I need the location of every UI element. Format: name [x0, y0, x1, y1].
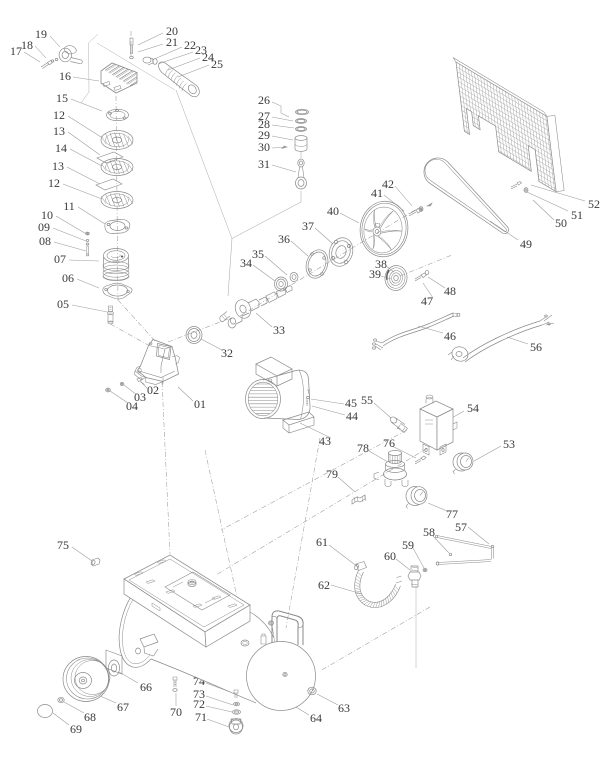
svg-text:45: 45 [345, 396, 357, 410]
svg-text:04: 04 [126, 399, 138, 413]
svg-text:56: 56 [530, 340, 542, 354]
svg-text:11: 11 [63, 199, 75, 213]
svg-text:25: 25 [211, 57, 223, 71]
svg-text:43: 43 [319, 434, 331, 448]
svg-text:18: 18 [21, 38, 33, 52]
svg-text:69: 69 [70, 722, 82, 736]
svg-text:34: 34 [240, 256, 252, 270]
svg-text:15: 15 [56, 91, 68, 105]
svg-text:39: 39 [369, 267, 381, 281]
svg-text:36: 36 [278, 232, 290, 246]
svg-text:14: 14 [55, 141, 67, 155]
svg-text:07: 07 [54, 252, 66, 266]
svg-text:52: 52 [588, 197, 600, 211]
svg-text:02: 02 [147, 383, 159, 397]
svg-text:58: 58 [423, 525, 435, 539]
svg-text:31: 31 [258, 157, 270, 171]
svg-text:66: 66 [140, 680, 152, 694]
svg-text:10: 10 [41, 208, 53, 222]
svg-text:62: 62 [318, 578, 330, 592]
svg-text:33: 33 [273, 323, 285, 337]
svg-text:59: 59 [402, 538, 414, 552]
svg-text:68: 68 [84, 710, 96, 724]
svg-text:51: 51 [571, 208, 583, 222]
svg-text:13: 13 [52, 159, 64, 173]
svg-text:09: 09 [38, 220, 50, 234]
svg-text:01: 01 [194, 397, 206, 411]
svg-text:37: 37 [302, 219, 314, 233]
svg-text:35: 35 [252, 247, 264, 261]
svg-text:54: 54 [467, 401, 479, 415]
svg-text:12: 12 [53, 108, 65, 122]
svg-text:26: 26 [258, 93, 270, 107]
svg-text:55: 55 [361, 393, 373, 407]
svg-text:53: 53 [503, 437, 515, 451]
svg-text:50: 50 [555, 216, 567, 230]
svg-text:79: 79 [326, 467, 338, 481]
svg-text:70: 70 [170, 705, 182, 719]
svg-text:16: 16 [59, 69, 71, 83]
svg-text:12: 12 [48, 176, 60, 190]
svg-text:32: 32 [221, 346, 233, 360]
svg-text:63: 63 [338, 701, 350, 715]
svg-text:61: 61 [316, 535, 328, 549]
svg-text:60: 60 [384, 549, 396, 563]
svg-text:67: 67 [117, 700, 129, 714]
svg-text:73: 73 [193, 687, 205, 701]
svg-text:57: 57 [455, 520, 467, 534]
svg-text:06: 06 [62, 271, 74, 285]
svg-text:47: 47 [421, 294, 433, 308]
svg-text:78: 78 [357, 441, 369, 455]
svg-text:13: 13 [53, 124, 65, 138]
svg-text:40: 40 [327, 204, 339, 218]
svg-text:64: 64 [310, 711, 322, 725]
svg-text:77: 77 [446, 507, 458, 521]
svg-text:49: 49 [520, 237, 532, 251]
svg-text:21: 21 [166, 35, 178, 49]
svg-text:71: 71 [195, 710, 207, 724]
svg-text:19: 19 [35, 27, 47, 41]
svg-text:46: 46 [444, 329, 456, 343]
svg-text:42: 42 [382, 177, 394, 191]
svg-text:48: 48 [444, 284, 456, 298]
svg-text:08: 08 [39, 234, 51, 248]
svg-text:75: 75 [57, 538, 69, 552]
svg-text:44: 44 [346, 409, 358, 423]
svg-text:76: 76 [383, 436, 395, 450]
svg-text:05: 05 [57, 297, 69, 311]
svg-text:30: 30 [258, 140, 270, 154]
